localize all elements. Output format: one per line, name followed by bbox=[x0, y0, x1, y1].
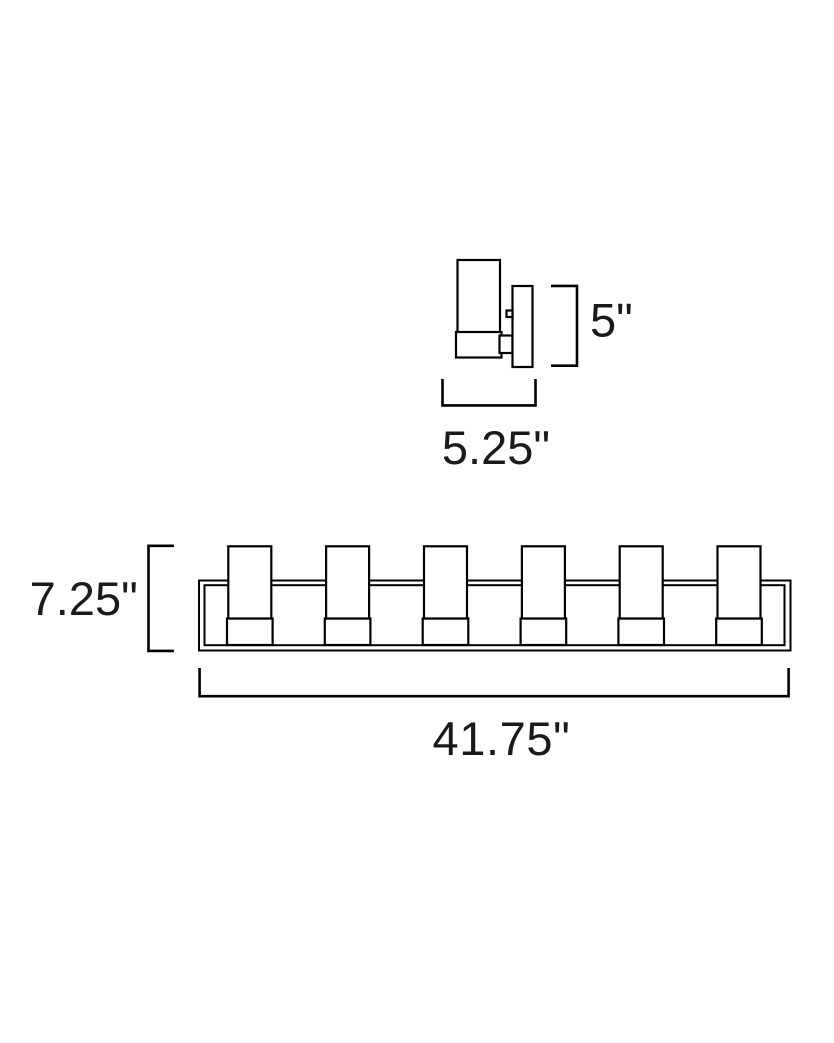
svg-text:7.25": 7.25" bbox=[30, 572, 138, 625]
svg-text:41.75": 41.75" bbox=[433, 712, 571, 765]
svg-text:5.25": 5.25" bbox=[442, 421, 550, 474]
svg-text:5": 5" bbox=[590, 294, 633, 347]
